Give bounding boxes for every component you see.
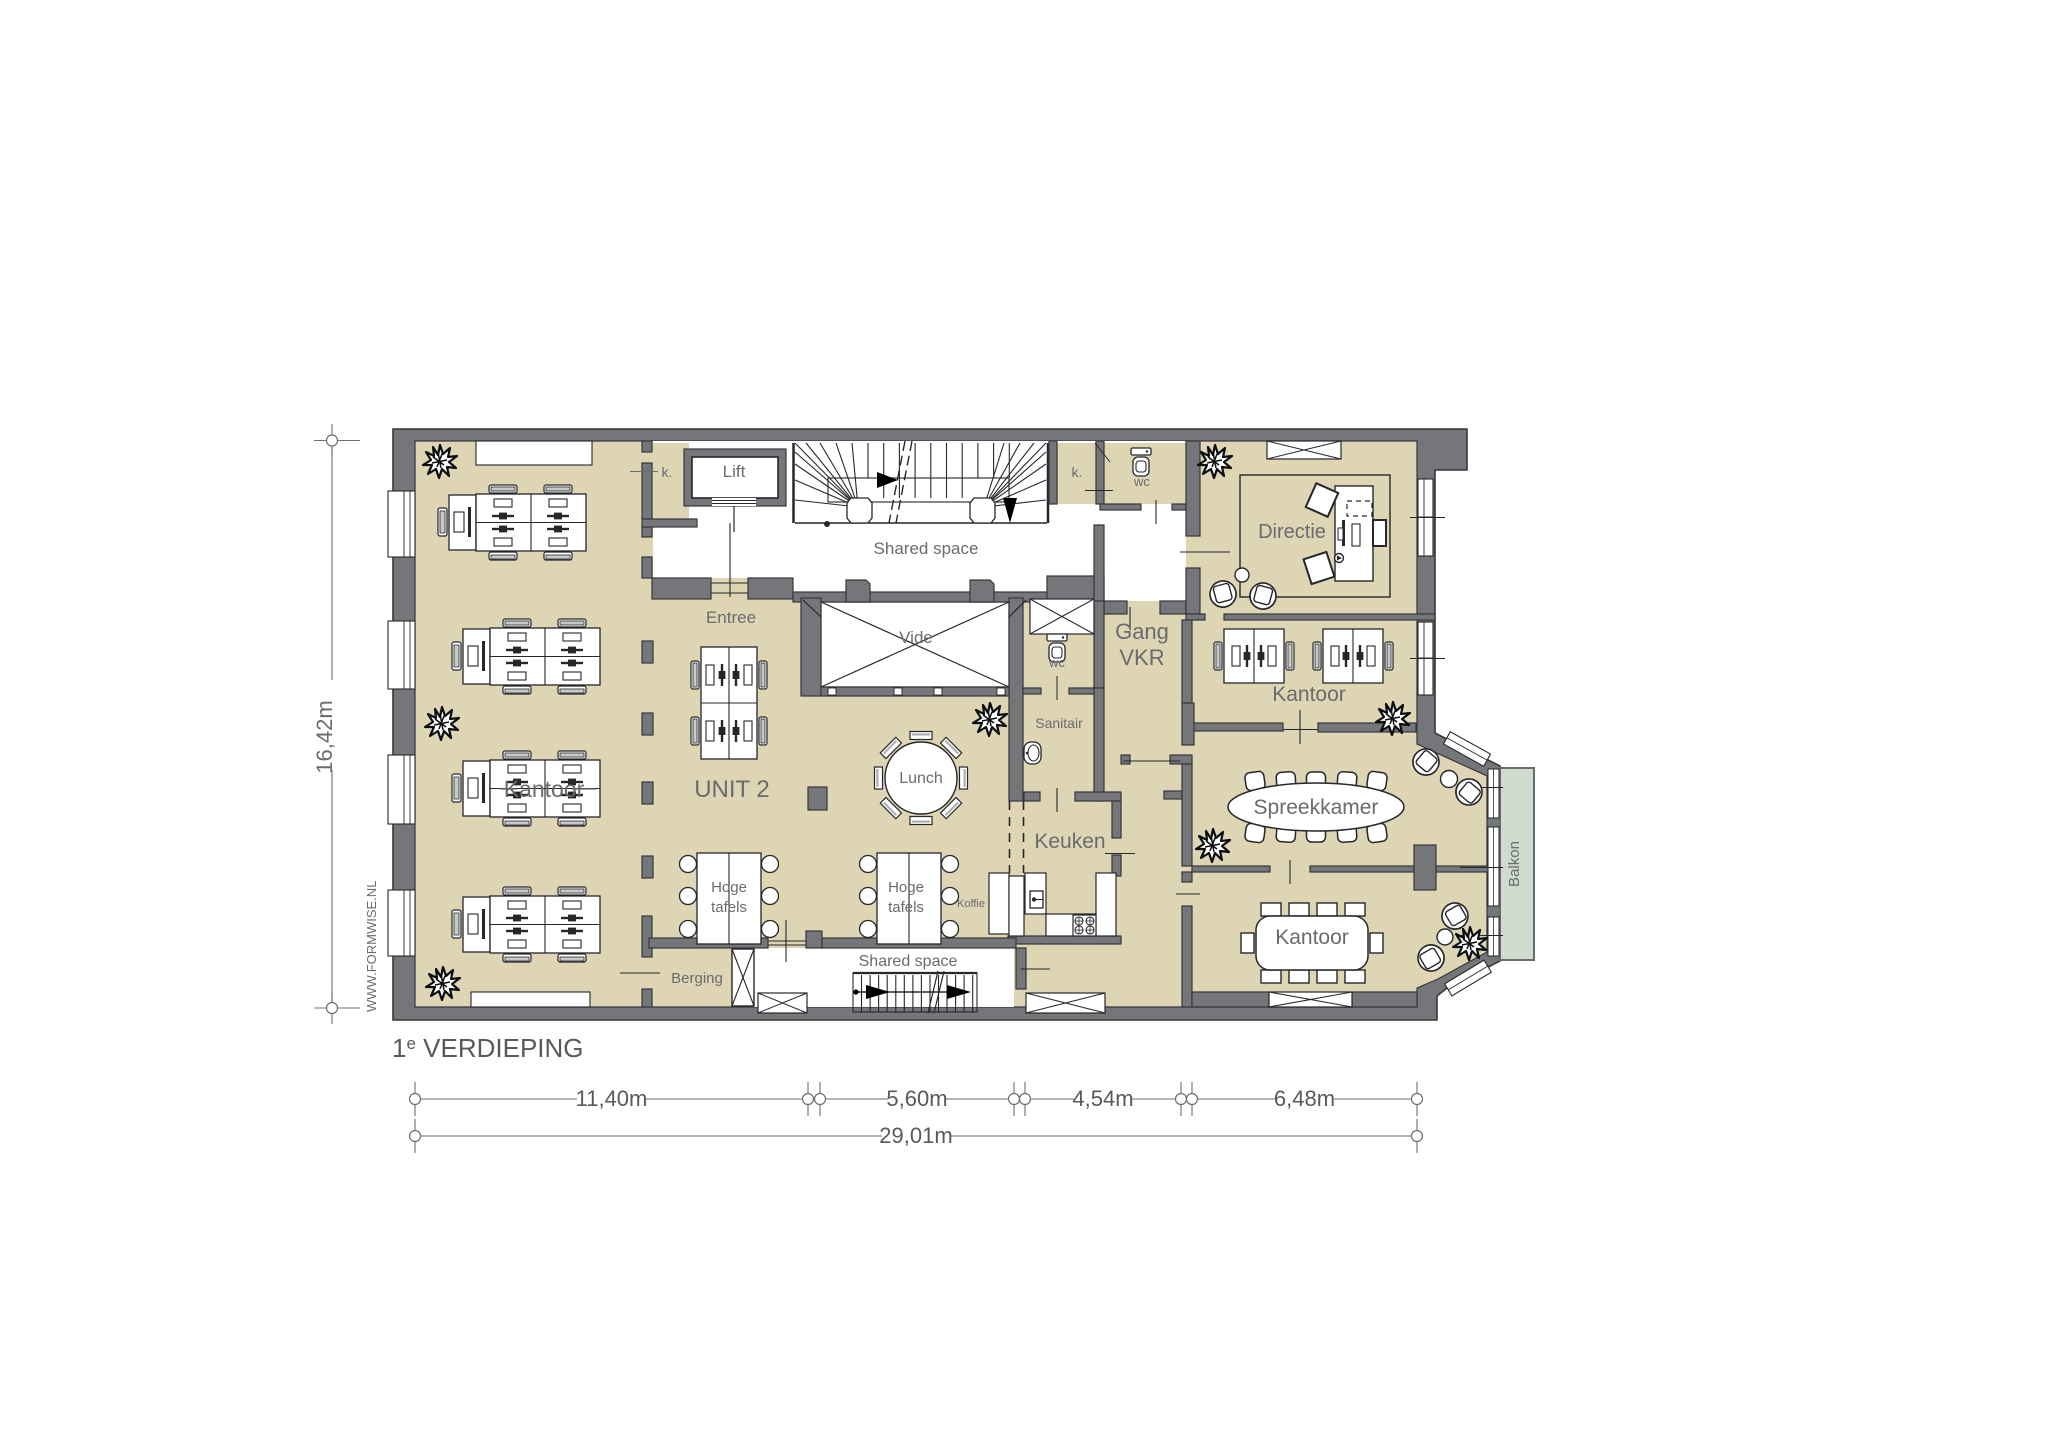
svg-text:Lunch: Lunch [899, 770, 943, 787]
svg-text:k.: k. [1072, 464, 1083, 480]
svg-text:Entree: Entree [706, 608, 756, 627]
svg-text:Balkon: Balkon [1506, 841, 1523, 887]
svg-text:Berging: Berging [671, 970, 723, 987]
svg-text:Hoge: Hoge [888, 879, 924, 896]
svg-text:4,54m: 4,54m [1072, 1086, 1133, 1111]
svg-text:Keuken: Keuken [1034, 830, 1105, 853]
svg-text:tafels: tafels [888, 899, 924, 916]
svg-text:UNIT 2: UNIT 2 [694, 776, 770, 803]
svg-text:11,40m: 11,40m [576, 1086, 648, 1111]
svg-text:29,01m: 29,01m [879, 1123, 952, 1148]
svg-text:6,48m: 6,48m [1274, 1086, 1335, 1111]
svg-text:wc: wc [1048, 655, 1065, 670]
svg-text:Kantoor: Kantoor [1275, 926, 1349, 949]
svg-text:tafels: tafels [711, 899, 747, 916]
svg-text:5,60m: 5,60m [886, 1086, 947, 1111]
svg-text:Spreekkamer: Spreekkamer [1254, 796, 1379, 819]
svg-text:Directie: Directie [1258, 521, 1326, 543]
svg-text:Shared space: Shared space [874, 539, 979, 558]
svg-text:VKR: VKR [1119, 645, 1164, 670]
svg-text:Vide: Vide [899, 628, 933, 647]
svg-text:1e VERDIEPING: 1e VERDIEPING [392, 1033, 584, 1063]
svg-text:WWW.FORMWISE.NL: WWW.FORMWISE.NL [364, 881, 379, 1012]
svg-text:Kantoor: Kantoor [1272, 683, 1346, 706]
svg-text:Lift: Lift [723, 462, 746, 481]
svg-text:Shared space: Shared space [859, 953, 958, 970]
svg-text:16,42m: 16,42m [312, 700, 337, 773]
svg-text:Gang: Gang [1115, 619, 1169, 644]
svg-text:Hoge: Hoge [711, 879, 747, 896]
svg-text:wc: wc [1133, 474, 1150, 489]
svg-text:Sanitair: Sanitair [1035, 715, 1083, 731]
svg-text:k.: k. [662, 464, 673, 480]
svg-text:Koffie: Koffie [957, 898, 985, 910]
